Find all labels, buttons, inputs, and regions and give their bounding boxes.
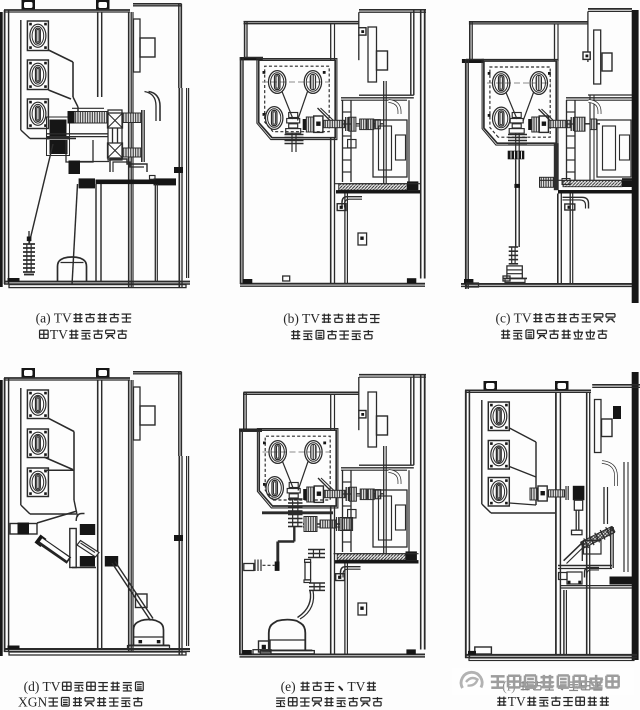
svg-text:TV: TV <box>508 694 526 709</box>
svg-text:XGN: XGN <box>18 695 47 710</box>
svg-text:(b) TV: (b) TV <box>283 311 320 326</box>
svg-text:(d) TV: (d) TV <box>24 679 61 694</box>
svg-text:TV: TV <box>50 327 68 342</box>
svg-text:(a) TV: (a) TV <box>36 311 72 326</box>
svg-text:(c) TV: (c) TV <box>496 311 532 326</box>
svg-text:(e): (e) <box>281 679 296 694</box>
svg-text:TV: TV <box>347 679 365 694</box>
